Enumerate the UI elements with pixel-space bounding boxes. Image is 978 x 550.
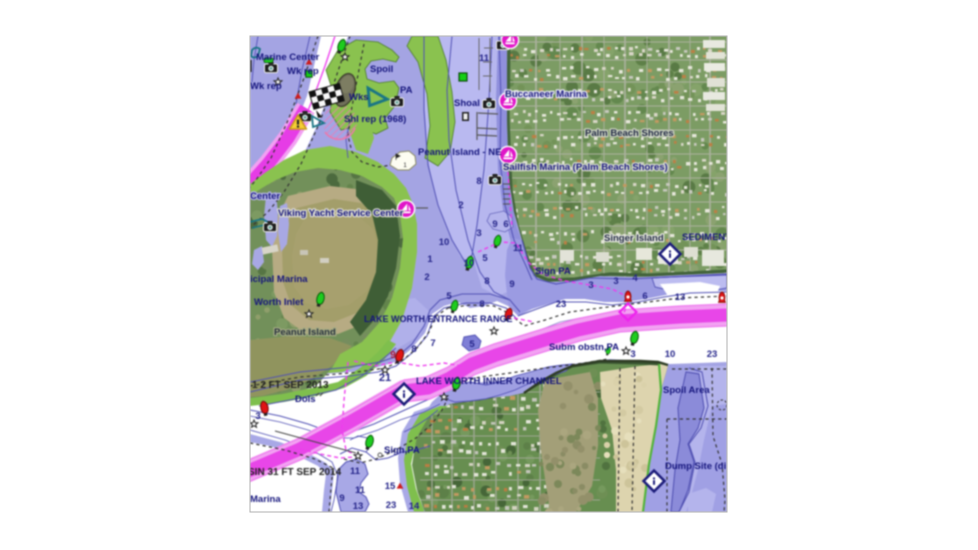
- svg-text:2: 2: [458, 200, 463, 211]
- svg-text:9: 9: [339, 493, 344, 504]
- svg-text:2: 2: [424, 272, 429, 283]
- svg-text:Worth Inlet: Worth Inlet: [254, 297, 304, 308]
- svg-text:Singer Island: Singer Island: [604, 233, 664, 244]
- svg-text:10: 10: [665, 349, 676, 360]
- svg-text:15: 15: [385, 481, 396, 492]
- svg-text:9: 9: [509, 279, 514, 290]
- svg-text:LAKE WORTH ENTRANCE RANGE: LAKE WORTH ENTRANCE RANGE: [364, 314, 513, 324]
- svg-text:5: 5: [446, 291, 452, 302]
- svg-text:4: 4: [632, 273, 638, 284]
- svg-text:Subm obstn,PA: Subm obstn,PA: [549, 342, 619, 353]
- svg-text:6: 6: [642, 291, 647, 302]
- svg-text:3: 3: [613, 276, 618, 287]
- svg-text:5: 5: [469, 339, 475, 350]
- svg-text:Viking Yacht Service Center: Viking Yacht Service Center: [278, 208, 404, 219]
- svg-text:LAKE WORTH INNER CHANNEL: LAKE WORTH INNER CHANNEL: [416, 376, 562, 387]
- svg-text:9: 9: [492, 219, 497, 230]
- svg-text:Wk rep: Wk rep: [287, 66, 319, 77]
- svg-text:Shoal: Shoal: [454, 98, 480, 109]
- svg-text:3: 3: [588, 280, 593, 291]
- svg-text:Sign PA: Sign PA: [535, 266, 571, 277]
- svg-text:11: 11: [350, 466, 361, 477]
- svg-text:Center: Center: [250, 191, 280, 202]
- svg-text:6: 6: [503, 219, 508, 230]
- svg-text:23: 23: [556, 299, 567, 310]
- svg-text:8: 8: [479, 299, 484, 310]
- svg-text:8: 8: [476, 176, 481, 187]
- svg-text:14: 14: [409, 501, 420, 512]
- svg-text:21: 21: [379, 372, 391, 384]
- svg-text:Palm Beach Shores: Palm Beach Shores: [585, 128, 674, 139]
- svg-text:13: 13: [675, 292, 686, 303]
- svg-text:Marine Center: Marine Center: [256, 52, 320, 63]
- svg-text:10: 10: [439, 237, 450, 248]
- svg-text:Sign,PA: Sign,PA: [384, 445, 420, 456]
- svg-text:Peanut Island - NE: Peanut Island - NE: [418, 147, 501, 158]
- svg-text:5: 5: [482, 253, 488, 264]
- svg-text:23: 23: [707, 349, 718, 360]
- svg-text:PA: PA: [400, 85, 413, 96]
- svg-text:SIN 31 FT SEP 2014: SIN 31 FT SEP 2014: [248, 467, 342, 478]
- svg-text:SEDIMENT: SEDIMENT: [682, 232, 731, 243]
- svg-text:Wk rep: Wk rep: [250, 81, 282, 92]
- svg-text:3: 3: [255, 411, 260, 422]
- svg-text:Marina: Marina: [250, 494, 281, 505]
- svg-text:Spoil Area: Spoil Area: [663, 385, 710, 396]
- svg-text:Buccaneer Marina: Buccaneer Marina: [505, 89, 588, 100]
- svg-text:10: 10: [464, 258, 475, 269]
- svg-text:3: 3: [630, 349, 635, 360]
- svg-text:9: 9: [390, 350, 396, 361]
- svg-text:Dols: Dols: [295, 394, 316, 405]
- svg-text:11: 11: [355, 485, 366, 496]
- svg-text:Peanut Island: Peanut Island: [274, 327, 336, 338]
- svg-text:Wks: Wks: [349, 92, 369, 103]
- svg-text:8: 8: [484, 276, 489, 287]
- svg-text:Spoil: Spoil: [370, 64, 393, 75]
- svg-text:Sailfish Marina (Palm Beach Sh: Sailfish Marina (Palm Beach Shores): [503, 162, 668, 173]
- svg-text:1 2 FT SEP 2013: 1 2 FT SEP 2013: [252, 380, 329, 391]
- svg-text:icipal Marina: icipal Marina: [250, 274, 308, 285]
- svg-text:8: 8: [411, 344, 416, 355]
- svg-text:23: 23: [386, 500, 397, 511]
- svg-text:1: 1: [403, 162, 407, 169]
- svg-text:Shl rep (1968): Shl rep (1968): [344, 114, 406, 125]
- svg-text:11: 11: [513, 243, 524, 254]
- svg-text:3: 3: [476, 228, 481, 239]
- svg-text:11: 11: [479, 53, 490, 64]
- svg-text:Dump Site (di: Dump Site (di: [665, 461, 726, 472]
- svg-text:13: 13: [353, 501, 364, 512]
- svg-text:7: 7: [430, 338, 435, 349]
- svg-text:1: 1: [427, 254, 433, 265]
